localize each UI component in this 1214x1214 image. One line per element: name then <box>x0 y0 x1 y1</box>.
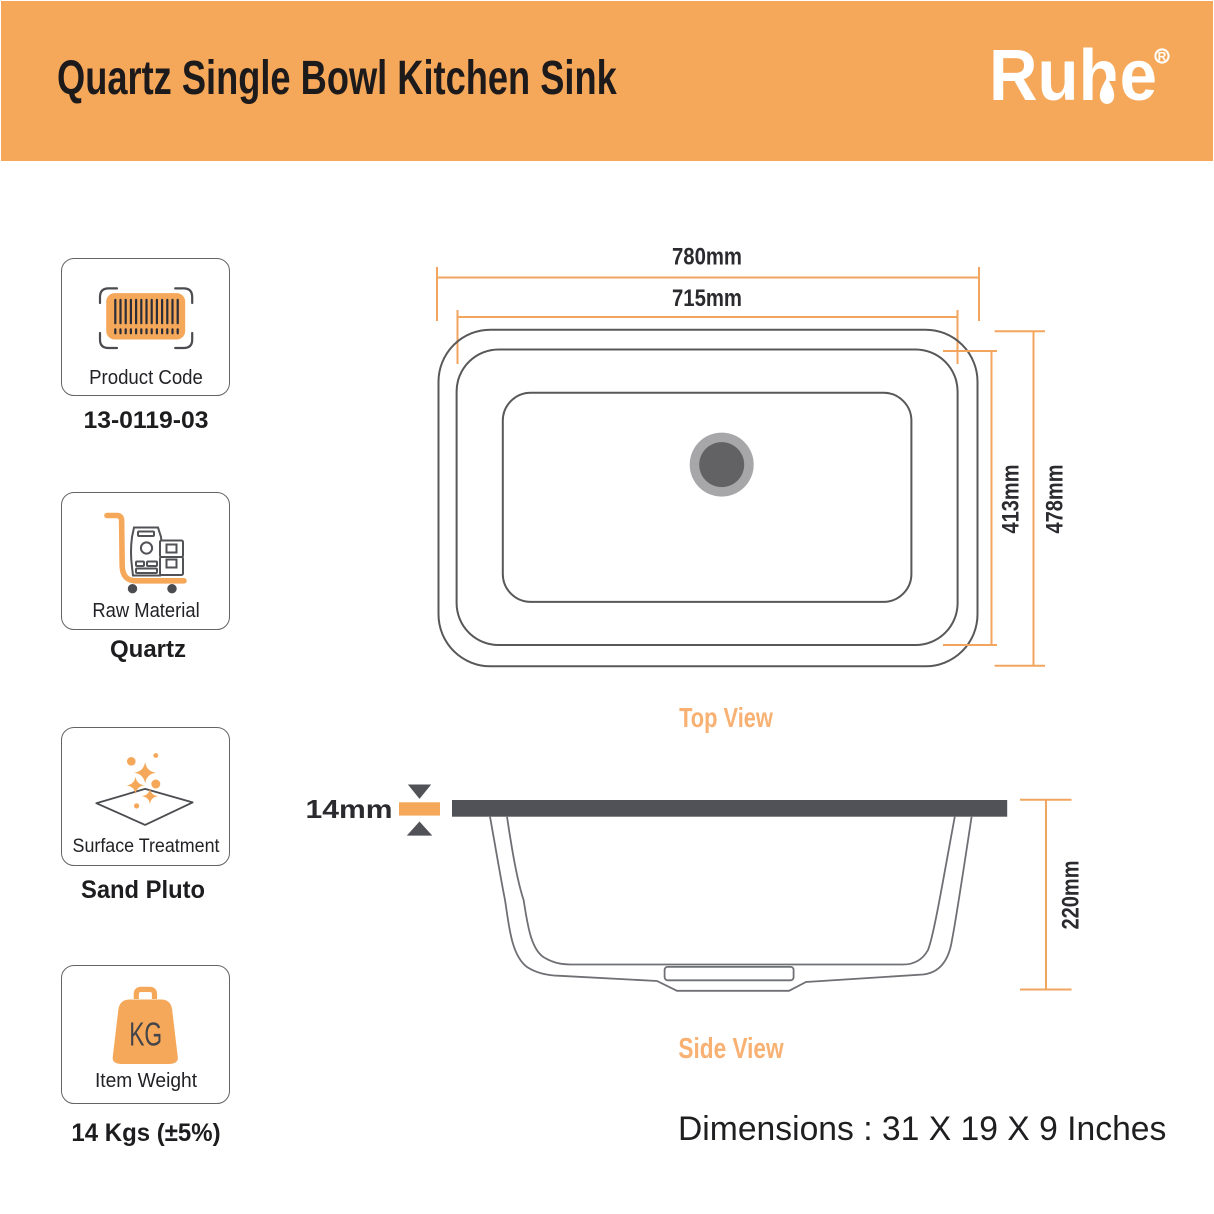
svg-text:KG: KG <box>129 1015 162 1052</box>
svg-text:14mm: 14mm <box>306 794 393 824</box>
svg-text:220mm: 220mm <box>1058 861 1085 930</box>
svg-text:Ruhe: Ruhe <box>989 36 1157 116</box>
svg-text:R: R <box>1158 50 1167 64</box>
svg-text:413mm: 413mm <box>998 465 1025 534</box>
svg-text:780mm: 780mm <box>672 244 742 271</box>
svg-text:715mm: 715mm <box>672 285 742 312</box>
svg-text:478mm: 478mm <box>1041 465 1068 534</box>
